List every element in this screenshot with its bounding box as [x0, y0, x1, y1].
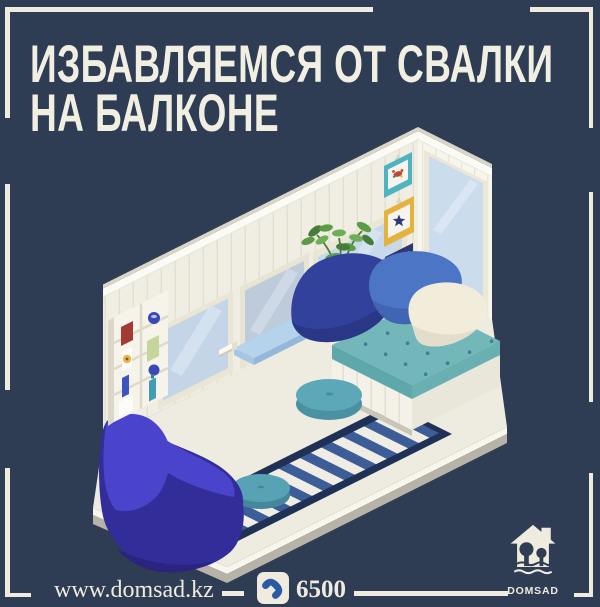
balcony-illustration	[0, 0, 600, 607]
domsad-logo house-icon	[502, 524, 564, 582]
website-url[interactable]: www.domsad.kz	[54, 577, 214, 604]
phone-number: 6500	[296, 576, 346, 604]
poster-canvas: ИЗБАВЛЯЕМСЯ ОТ СВАЛКИ НА БАЛКОНЕ	[0, 0, 600, 607]
pouf-large	[296, 379, 362, 420]
domsad-logo-label: DOMSAD	[498, 585, 568, 597]
phone-icon	[257, 572, 289, 604]
